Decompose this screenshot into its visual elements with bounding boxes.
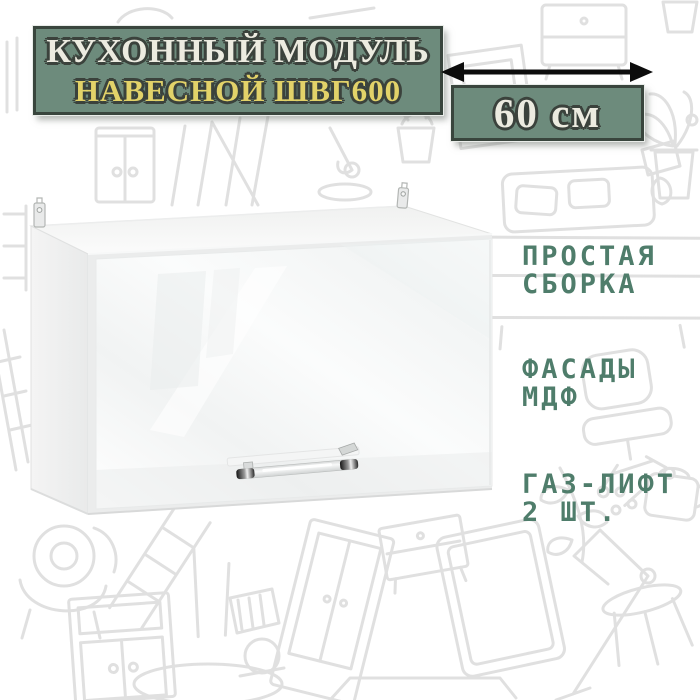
product-subtitle: НАВЕСНОЙ ШВГ600 xyxy=(75,75,401,107)
product-title: КУХОННЫЙ МОДУЛЬ xyxy=(46,35,429,70)
feature-line: МДФ xyxy=(522,384,638,412)
left-hanging-bracket xyxy=(34,198,45,227)
cabinet xyxy=(31,183,492,514)
feature-line: ПРОСТАЯ xyxy=(522,243,657,271)
handle-bar-left-cap xyxy=(236,468,255,480)
title-banner: КУХОННЫЙ МОДУЛЬ НАВЕСНОЙ ШВГ600 xyxy=(33,26,443,115)
feature-gas-lift: ГАЗ-ЛИФТ 2 ШТ. xyxy=(522,471,676,527)
feature-line: 2 ШТ. xyxy=(522,499,676,527)
right-hanging-bracket xyxy=(397,183,409,209)
handle-bar-right-cap xyxy=(340,459,359,471)
feature-simple-assembly: ПРОСТАЯ СБОРКА xyxy=(522,243,657,299)
feature-line: СБОРКА xyxy=(522,271,657,299)
feature-line: ГАЗ-ЛИФТ xyxy=(522,471,676,499)
width-dimension-badge: 60 см xyxy=(451,85,644,141)
door-reflection-window xyxy=(150,271,206,390)
feature-line: ФАСАДЫ xyxy=(522,356,638,384)
width-arrow-icon xyxy=(441,57,653,87)
cabinet-left-side-panel xyxy=(31,226,88,514)
feature-mdf-facades: ФАСАДЫ МДФ xyxy=(522,356,638,412)
product-card: КУХОННЫЙ МОДУЛЬ НАВЕСНОЙ ШВГ600 60 см ПР… xyxy=(0,0,700,700)
